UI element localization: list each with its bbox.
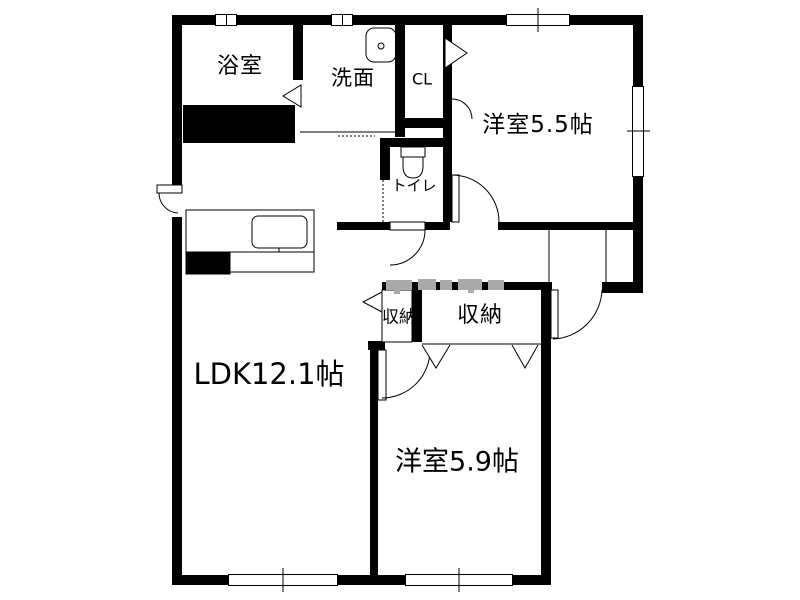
floorplan-symbols: [0, 0, 800, 600]
closet-door-arc: [452, 99, 472, 119]
room-label-bedroom-b: 洋室5.9帖: [395, 440, 519, 479]
room-label-closet: CL: [412, 70, 432, 89]
toilet-tank-icon: [401, 147, 425, 157]
bedroom-a-door-leaf: [452, 175, 459, 222]
room-label-bedroom-a: 洋室5.5帖: [482, 105, 594, 139]
bedroom-b-door-arc: [382, 350, 430, 398]
storage-small-door-icon: [363, 292, 382, 312]
room-label-toilet: トイレ: [391, 175, 436, 196]
bedroom-b-door-leaf: [378, 350, 386, 400]
entrance-door-leaf: [551, 290, 558, 338]
closet-door-icon: [445, 38, 467, 68]
kitchen-block: [186, 252, 230, 274]
toilet-door-leaf: [390, 222, 425, 230]
room-label-ldk: LDK12.1帖: [193, 351, 344, 393]
service-door-leaf: [157, 185, 182, 193]
service-door-arc: [159, 193, 178, 213]
kitchen-counter-lower: [230, 252, 314, 272]
room-label-bathroom: 浴室: [217, 48, 263, 80]
floorplan: 浴室 洗面 CL 洋室5.5帖 トイレ 収納 収納 LDK12.1帖 洋室5.9…: [0, 0, 800, 600]
folding-door-icon: [422, 345, 450, 368]
room-label-washroom: 洗面: [331, 62, 375, 92]
folding-door-icon: [512, 345, 538, 368]
sink-drain-icon: [378, 43, 384, 49]
toilet-door-arc: [390, 230, 425, 265]
sink-icon: [366, 28, 396, 62]
room-label-storage-large: 収納: [457, 297, 503, 329]
entrance-door-arc: [553, 290, 602, 339]
bathroom-door-icon: [283, 85, 301, 107]
room-label-storage-small: 収納: [382, 303, 416, 328]
